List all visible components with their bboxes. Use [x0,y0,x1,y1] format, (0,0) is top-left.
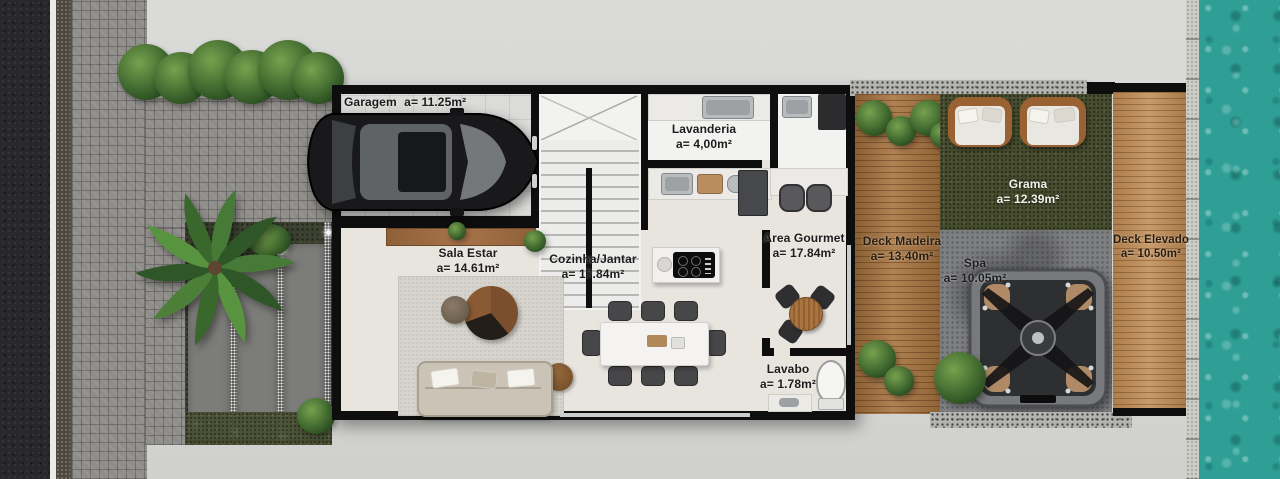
room-area: a= 1.78m² [744,377,832,392]
sofa [417,361,553,417]
room-area: a= 14.61m² [398,261,538,276]
dining-table [600,322,709,366]
sofa-pillow [470,370,498,390]
room-area: a= 12.39m² [970,192,1086,207]
sofa-pillow [430,367,460,389]
room-name: Lavanderia [645,122,763,137]
lavabo-sink-counter [768,394,812,412]
palm-tree [130,183,300,353]
coffee-table-large [464,286,518,340]
elevated-deck-bottom-edge [1113,408,1186,416]
stair-landing-lines [539,94,641,142]
dining-chair [608,366,632,386]
burner [678,267,688,277]
lavabo-top-wall [762,348,774,356]
sun-lounger [1020,97,1086,147]
bar-stool [779,184,805,212]
room-name: Cozinha/Jantar [528,252,658,267]
lavabo-top-wall-right [790,348,852,356]
car-headlight [532,174,537,188]
gourmet-table [789,297,823,331]
room-label-spa: Spa a= 10.05m² [922,256,1028,285]
toilet-tank [818,398,844,410]
table-decor [671,337,685,349]
garden-light [326,230,331,235]
elevated-deck-top-edge [1113,83,1186,92]
room-label-area-gourmet: Area Gourmet a= 17.84m² [748,231,860,260]
room-area: a= 17.84m² [748,246,860,261]
patio-glass-door [560,413,750,417]
sofa-pillow [506,368,535,388]
dining-chair [706,330,726,356]
kitchen-gourmet-wall [770,94,778,168]
stairs-right-wall [641,94,648,230]
room-label-grama: Grama a= 12.39m² [970,177,1086,206]
room-name: Deck Elevado [1106,233,1196,247]
dining-chair [674,366,698,386]
kitchen-sink [661,173,693,195]
room-label-garagem: Garagem a= 11.25m² [344,95,524,110]
burner [678,256,688,266]
spa-control-panel [1020,395,1056,403]
table-decor [647,335,667,347]
room-name: Lavabo [744,362,832,377]
gourmet-cabinet [818,94,846,130]
spa-plant [934,352,986,404]
gourmet-upper-floor [778,94,846,168]
island-bowl [657,257,672,272]
burner [691,256,701,266]
room-area: a= 10.50m² [1106,247,1196,261]
sun-lounger [948,97,1012,147]
cooktop [673,252,715,278]
backyard-granite-strip [930,412,1132,428]
cooktop-knobs [705,258,711,274]
dining-chair [641,301,665,321]
room-label-sala-estar: Sala Estar a= 14.61m² [398,246,538,275]
curb-gravel-strip [56,0,70,479]
room-area: a= 17.84m² [528,267,658,282]
car-headlight [532,136,537,150]
car-mirror [450,208,464,216]
dining-chair [641,366,665,386]
dining-chair [674,301,698,321]
laundry-sink [702,96,754,119]
spa-hot-tub [968,268,1108,408]
console-plant [448,222,466,240]
room-label-cozinha-jantar: Cozinha/Jantar a= 17.84m² [528,252,658,281]
room-name: Garagem [344,95,397,109]
car-top-view [302,106,545,218]
coffee-table-small [441,296,469,324]
burner [691,267,701,277]
floor-plan-render: Garagem a= 11.25m² Lavanderia a= 4,00m² … [0,0,1280,479]
room-name: Spa [922,256,1028,271]
palm-trunk-top [208,261,222,275]
garden-bush [297,398,335,434]
deck-plant-lower [884,366,914,396]
lounger-pillow [981,107,1003,124]
bar-stool [806,184,832,212]
kitchen-island [652,247,720,283]
dining-chair [608,301,632,321]
stair-rail [586,168,592,308]
room-area: a= 11.25m² [404,95,466,109]
room-name: Grama [970,177,1086,192]
room-area: a= 4,00m² [645,137,763,152]
backyard-top-wall [1087,82,1115,94]
gourmet-sink [782,96,812,118]
swimming-pool [1199,0,1280,479]
room-label-deck-elevado: Deck Elevado a= 10.50m² [1106,233,1196,261]
dining-chair [582,330,602,356]
room-area: a= 10.05m² [922,271,1028,286]
refrigerator [738,170,768,216]
room-label-lavanderia: Lavanderia a= 4,00m² [645,122,763,151]
cutting-board [697,174,723,194]
laundry-bottom-wall [648,160,762,168]
lavabo-basin [779,398,799,407]
room-name: Deck Madeira [850,234,954,249]
lounger-pillow [1028,108,1050,125]
room-name: Sala Estar [398,246,538,261]
room-name: Area Gourmet [748,231,860,246]
street-asphalt [0,0,52,479]
room-label-lavabo: Lavabo a= 1.78m² [744,362,832,391]
car-sunroof [398,132,446,192]
lounger-pillow [1053,107,1076,123]
